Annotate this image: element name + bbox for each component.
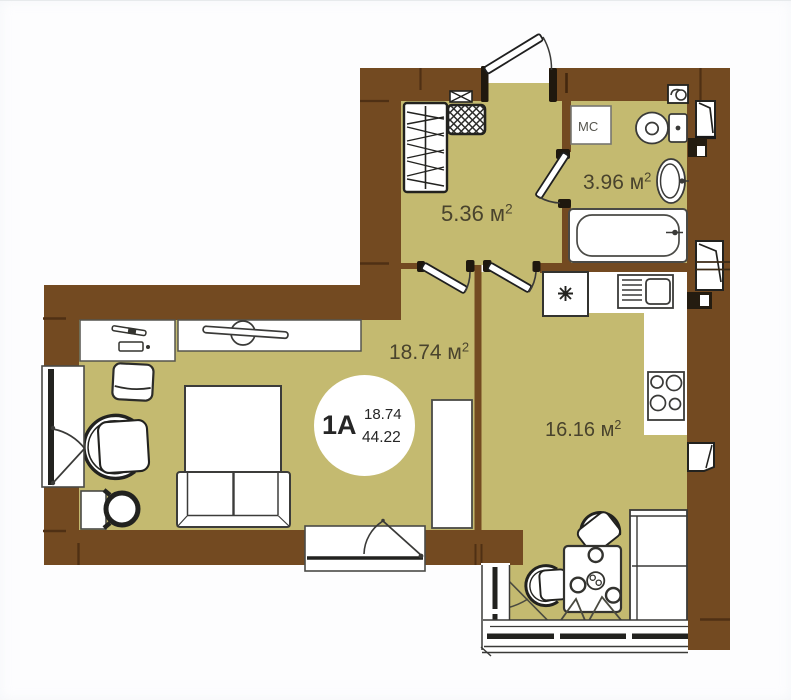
svg-text:16.16 м2: 16.16 м2	[545, 418, 621, 441]
svg-text:18.74: 18.74	[364, 406, 402, 423]
svg-text:5.36 м2: 5.36 м2	[441, 201, 513, 226]
svg-text:3.96 м2: 3.96 м2	[583, 170, 651, 195]
svg-text:44.22: 44.22	[362, 429, 401, 446]
svg-text:1A: 1A	[322, 410, 357, 440]
svg-text:18.74 м2: 18.74 м2	[389, 340, 469, 365]
svg-text:МС: МС	[578, 119, 598, 134]
